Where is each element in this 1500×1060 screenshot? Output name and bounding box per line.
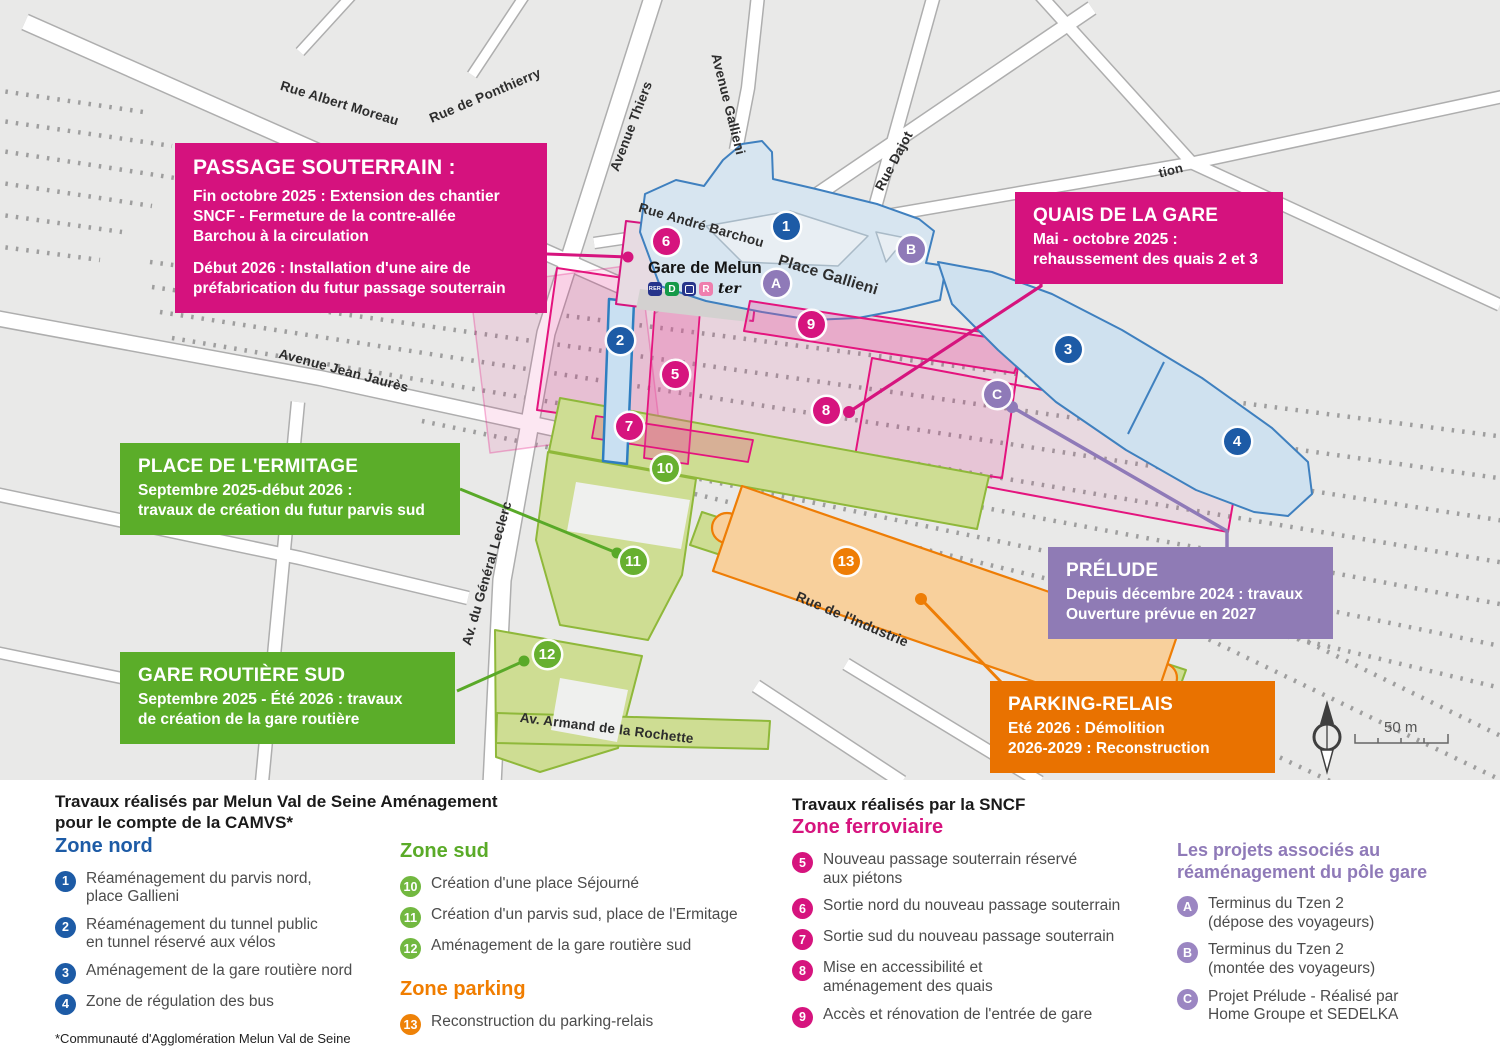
- callout-title: PASSAGE SOUTERRAIN :: [193, 156, 529, 180]
- legend-item-text: Création d'une place Séjourné: [431, 875, 639, 894]
- map-area: Rue Albert MoreauRue de PonthierryAvenue…: [0, 0, 1500, 780]
- legend-sections-col4: Les projets associés au réaménagement du…: [1177, 840, 1497, 1025]
- callout-body: Début 2026 : Installation d'une aire de …: [193, 259, 529, 299]
- legend-item-text: Création d'un parvis sud, place de l'Erm…: [431, 906, 738, 925]
- callout-body: Septembre 2025-début 2026 : travaux de c…: [138, 481, 442, 521]
- callout-body: Fin octobre 2025 : Extension des chantie…: [193, 187, 529, 246]
- map-marker-C: C: [984, 381, 1011, 408]
- scale-label: 50 m: [1384, 719, 1417, 736]
- callout-quais-de-la-gare: QUAIS DE LA GARE Mai - octobre 2025 : re…: [1015, 192, 1283, 284]
- legend-item-12: 12Aménagement de la gare routière sud: [400, 937, 760, 959]
- legend-item-text: Projet Prélude - Réalisé par Home Groupe…: [1208, 988, 1398, 1025]
- marker-chip-11: 11: [400, 907, 421, 928]
- legend-item-text: Terminus du Tzen 2 (montée des voyageurs…: [1208, 941, 1375, 978]
- marker-chip-10: 10: [400, 876, 421, 897]
- marker-chip-A: A: [1177, 896, 1198, 917]
- legend-item-6: 6Sortie nord du nouveau passage souterra…: [792, 897, 1172, 919]
- callout-parking-relais: PARKING-RELAIS Eté 2026 : Démolition 202…: [990, 681, 1275, 773]
- map-marker-10: 10: [652, 455, 679, 482]
- map-marker-6: 6: [653, 228, 680, 255]
- callout-title: GARE ROUTIÈRE SUD: [138, 665, 437, 687]
- callout-body: Septembre 2025 - Été 2026 : travaux de c…: [138, 690, 437, 730]
- station-label-block: Gare de Melun RER D R ter: [648, 259, 762, 297]
- callout-passage-souterrain: PASSAGE SOUTERRAIN : Fin octobre 2025 : …: [175, 143, 547, 313]
- legend-heading-projets-associes: Les projets associés au réaménagement du…: [1177, 840, 1497, 883]
- legend-item-text: Accès et rénovation de l'entrée de gare: [823, 1006, 1092, 1025]
- legend-column-sud-parking: Zone sud10Création d'une place Séjourné1…: [400, 839, 760, 1044]
- marker-chip-9: 9: [792, 1007, 813, 1028]
- legend-item-A: ATerminus du Tzen 2 (dépose des voyageur…: [1177, 895, 1497, 932]
- marker-chip-2: 2: [55, 917, 76, 938]
- map-marker-2: 2: [607, 327, 634, 354]
- legend-item-text: Reconstruction du parking-relais: [431, 1013, 653, 1032]
- marker-chip-1: 1: [55, 871, 76, 892]
- legend-item-10: 10Création d'une place Séjourné: [400, 875, 760, 897]
- legend-item-B: BTerminus du Tzen 2 (montée des voyageur…: [1177, 941, 1497, 978]
- map-marker-3: 3: [1055, 336, 1082, 363]
- marker-chip-12: 12: [400, 938, 421, 959]
- station-name: Gare de Melun: [648, 259, 762, 278]
- callout-body: Eté 2026 : Démolition 2026-2029 : Recons…: [1008, 719, 1257, 759]
- marker-chip-8: 8: [792, 960, 813, 981]
- legend-item-13: 13Reconstruction du parking-relais: [400, 1013, 760, 1035]
- legend-heading-zone-ferroviaire: Zone ferroviaire: [792, 815, 1172, 839]
- infographic-canvas: Rue Albert MoreauRue de PonthierryAvenue…: [0, 0, 1500, 1060]
- legend-heading-zone-sud: Zone sud: [400, 839, 760, 863]
- legend-column-projets: Les projets associés au réaménagement du…: [1177, 840, 1497, 1034]
- marker-chip-C: C: [1177, 989, 1198, 1010]
- north-arrow-icon: [1314, 700, 1340, 772]
- legend-item-text: Mise en accessibilité et aménagement des…: [823, 959, 993, 996]
- callout-title: PRÉLUDE: [1066, 560, 1315, 582]
- map-marker-4: 4: [1224, 428, 1251, 455]
- legend-sections-col2: Zone sud10Création d'une place Séjourné1…: [400, 839, 760, 1035]
- legend-heading-zone-parking: Zone parking: [400, 977, 760, 1001]
- callout-title: QUAIS DE LA GARE: [1033, 205, 1265, 227]
- legend-item-text: Réaménagement du parvis nord, place Gall…: [86, 870, 312, 907]
- map-marker-12: 12: [534, 641, 561, 668]
- legend-column-sncf: Travaux réalisés par la SNCF Zone ferrov…: [792, 794, 1172, 1037]
- legend-item-text: Sortie sud du nouveau passage souterrain: [823, 928, 1114, 947]
- transilien-train-icon: [682, 282, 696, 296]
- marker-chip-13: 13: [400, 1014, 421, 1035]
- legend-item-text: Aménagement de la gare routière nord: [86, 962, 352, 981]
- legend-title-camvs: Travaux réalisés par Melun Val de Seine …: [55, 791, 555, 834]
- map-marker-1: 1: [773, 213, 800, 240]
- map-marker-5: 5: [662, 361, 689, 388]
- legend-item-text: Zone de régulation des bus: [86, 993, 274, 1012]
- rer-line-d-icon: D: [665, 282, 679, 296]
- map-marker-11: 11: [620, 548, 647, 575]
- legend-item-7: 7Sortie sud du nouveau passage souterrai…: [792, 928, 1172, 950]
- legend-item-5: 5Nouveau passage souterrain réservé aux …: [792, 851, 1172, 888]
- transilien-line-r-icon: R: [699, 282, 713, 296]
- callout-gare-routiere-sud: GARE ROUTIÈRE SUD Septembre 2025 - Été 2…: [120, 652, 455, 744]
- legend-item-text: Nouveau passage souterrain réservé aux p…: [823, 851, 1077, 888]
- legend-title-sncf: Travaux réalisés par la SNCF: [792, 794, 1172, 815]
- map-marker-A: A: [763, 270, 790, 297]
- map-marker-13: 13: [833, 548, 860, 575]
- map-marker-B: B: [898, 236, 925, 263]
- legend-sections-col3: Zone ferroviaire5Nouveau passage souterr…: [792, 815, 1172, 1027]
- ter-icon: ter: [718, 281, 741, 297]
- map-marker-8: 8: [813, 397, 840, 424]
- marker-chip-7: 7: [792, 929, 813, 950]
- legend-item-text: Réaménagement du tunnel public en tunnel…: [86, 916, 318, 953]
- marker-chip-5: 5: [792, 852, 813, 873]
- rer-icon: RER: [648, 282, 662, 296]
- marker-chip-4: 4: [55, 994, 76, 1015]
- legend-item-text: Aménagement de la gare routière sud: [431, 937, 691, 956]
- legend-item-C: CProjet Prélude - Réalisé par Home Group…: [1177, 988, 1497, 1025]
- legend-item-9: 9Accès et rénovation de l'entrée de gare: [792, 1006, 1172, 1028]
- marker-chip-B: B: [1177, 942, 1198, 963]
- legend-item-text: Terminus du Tzen 2 (dépose des voyageurs…: [1208, 895, 1374, 932]
- callout-title: PARKING-RELAIS: [1008, 694, 1257, 716]
- callout-place-de-l-ermitage: PLACE DE L'ERMITAGE Septembre 2025-début…: [120, 443, 460, 535]
- callout-body: Depuis décembre 2024 : travaux Ouverture…: [1066, 585, 1315, 625]
- callout-body: Mai - octobre 2025 : rehaussement des qu…: [1033, 230, 1265, 270]
- callout-prelude: PRÉLUDE Depuis décembre 2024 : travaux O…: [1048, 547, 1333, 639]
- marker-chip-6: 6: [792, 898, 813, 919]
- legend-item-text: Sortie nord du nouveau passage souterrai…: [823, 897, 1120, 916]
- legend-item-8: 8Mise en accessibilité et aménagement de…: [792, 959, 1172, 996]
- map-marker-7: 7: [616, 413, 643, 440]
- marker-chip-3: 3: [55, 963, 76, 984]
- callout-title: PLACE DE L'ERMITAGE: [138, 456, 442, 478]
- legend-item-11: 11Création d'un parvis sud, place de l'E…: [400, 906, 760, 928]
- transit-icons-row: RER D R ter: [648, 281, 762, 297]
- map-marker-9: 9: [798, 311, 825, 338]
